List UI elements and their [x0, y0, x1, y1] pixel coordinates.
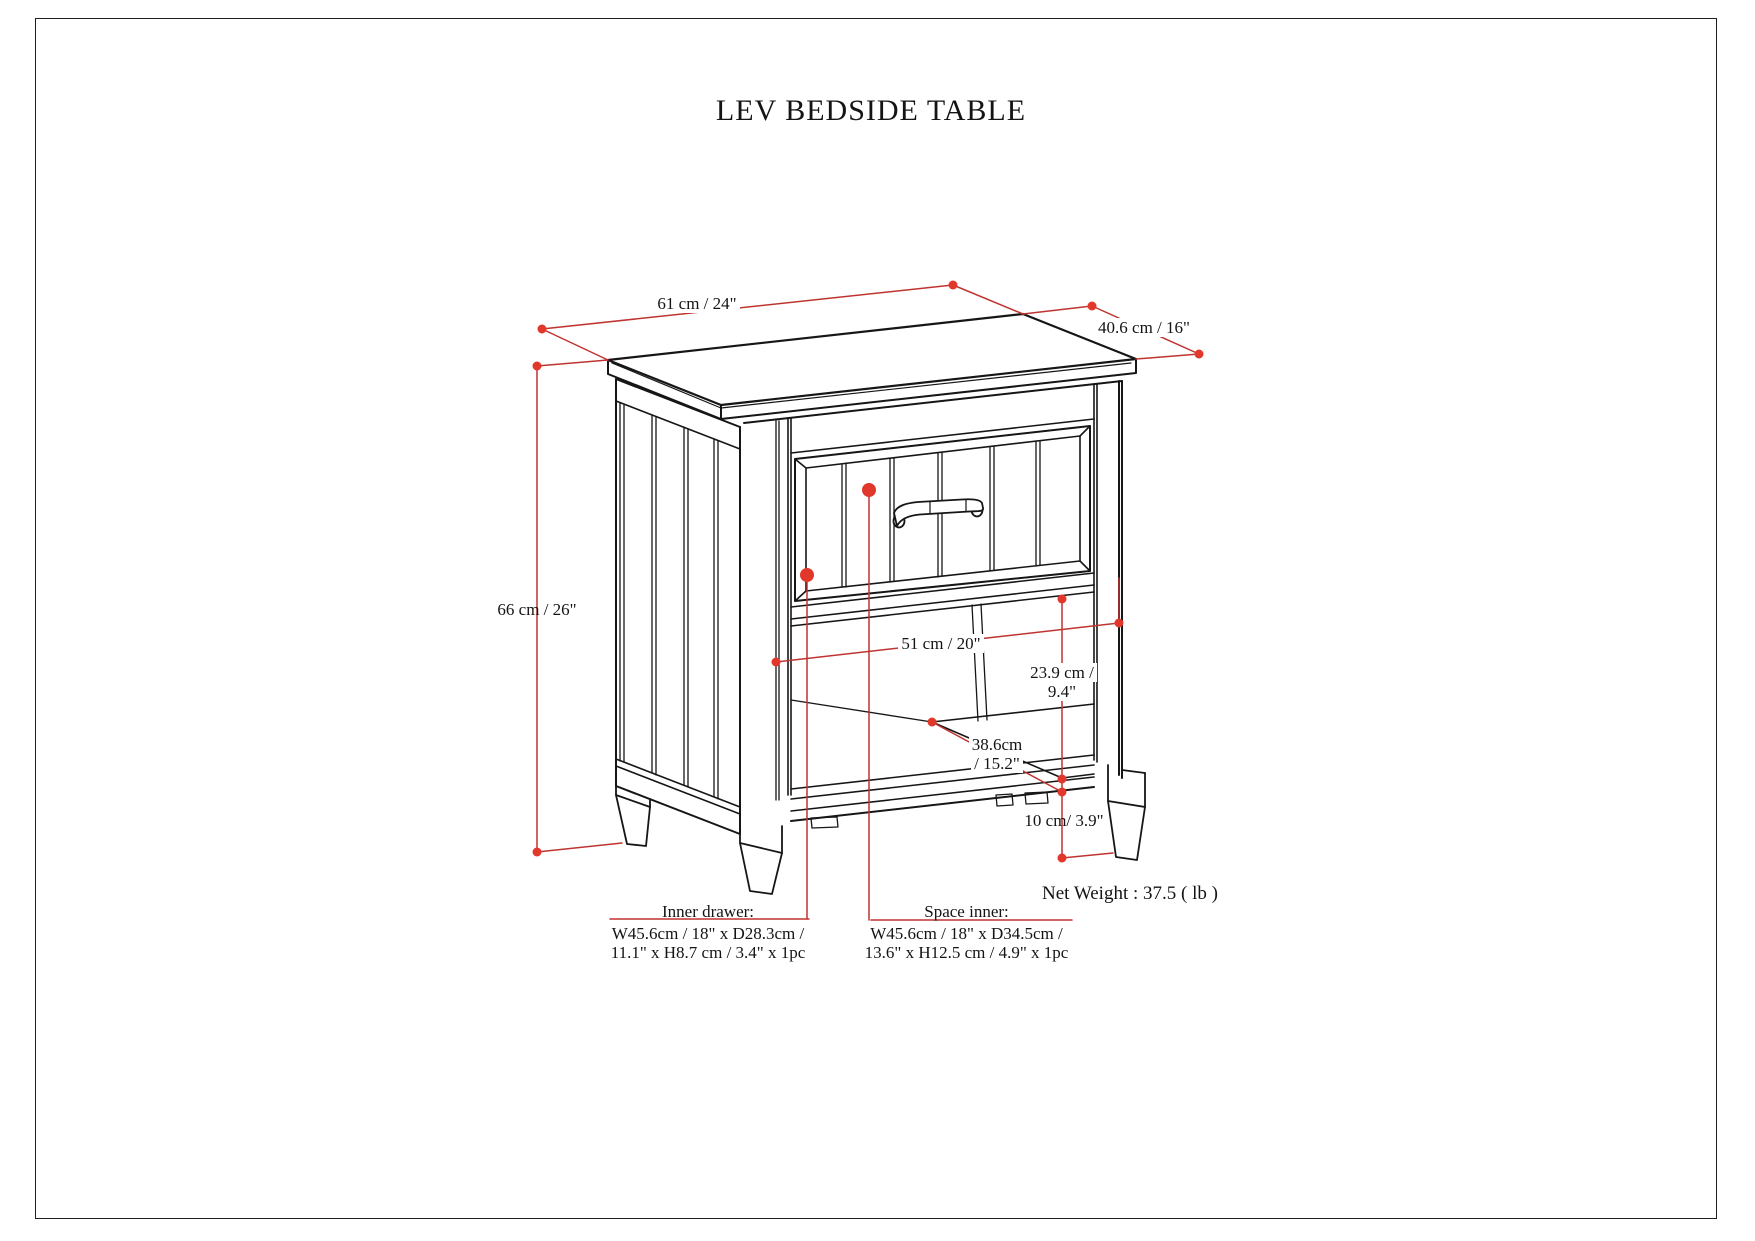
space-inner-line2: 13.6" x H12.5 cm / 4.9" x 1pc — [844, 943, 1089, 962]
inner-drawer-line1: W45.6cm / 18" x D28.3cm / — [578, 924, 838, 943]
space-inner-callout: Space inner: W45.6cm / 18" x D34.5cm / 1… — [844, 902, 1089, 962]
product-dimension-diagram: LEV BEDSIDE TABLE 61 cm / 24" 40.6 cm / … — [0, 0, 1755, 1241]
dim-opening-height-line1: 23.9 cm / — [1027, 663, 1097, 682]
left-side-panel — [616, 379, 740, 834]
dim-opening-height-line2: 9.4" — [1045, 682, 1079, 701]
page-title: LEV BEDSIDE TABLE — [600, 94, 1142, 128]
dim-depth-label: 40.6 cm / 16" — [1064, 318, 1224, 337]
furniture-line-art — [0, 0, 1755, 1241]
dim-depth-text: 40.6 cm / 16" — [1095, 318, 1193, 337]
dim-shelf-depth-line2: / 15.2" — [971, 754, 1023, 773]
inner-drawer-marker-dot — [800, 568, 814, 582]
callout-stems — [610, 490, 1072, 920]
space-inner-heading: Space inner: — [844, 902, 1089, 921]
inner-drawer-heading: Inner drawer: — [578, 902, 838, 921]
space-inner-marker-dot — [862, 483, 876, 497]
inner-drawer-line2: 11.1" x H8.7 cm / 3.4" x 1pc — [578, 943, 838, 962]
dim-opening-width-text: 51 cm / 20" — [898, 634, 983, 653]
dim-shelf-depth-line1: 38.6cm — [969, 735, 1026, 754]
dim-height-text: 66 cm / 26" — [497, 600, 576, 619]
dim-width-text: 61 cm / 24" — [654, 294, 739, 313]
space-inner-line1: W45.6cm / 18" x D34.5cm / — [844, 924, 1089, 943]
dim-opening-height-label: 23.9 cm / 9.4" — [982, 663, 1142, 701]
table-top — [608, 314, 1136, 419]
front-left-leg — [740, 826, 782, 894]
net-weight-label: Net Weight : 37.5 ( lb ) — [1042, 884, 1302, 903]
inner-drawer-callout: Inner drawer: W45.6cm / 18" x D28.3cm / … — [578, 902, 838, 962]
dim-leg-clearance-text: 10 cm/ 3.9" — [1024, 811, 1103, 830]
dim-shelf-depth-label: 38.6cm / 15.2" — [917, 735, 1077, 773]
dim-opening-width-label: 51 cm / 20" — [861, 634, 1021, 653]
dim-height-label: 66 cm / 26" — [457, 600, 617, 619]
dim-width-label: 61 cm / 24" — [617, 294, 777, 313]
back-left-leg — [616, 786, 650, 846]
dim-leg-clearance-label: 10 cm/ 3.9" — [984, 811, 1144, 830]
dimension-dots — [533, 281, 1204, 863]
bedside-table-drawing — [608, 314, 1145, 894]
